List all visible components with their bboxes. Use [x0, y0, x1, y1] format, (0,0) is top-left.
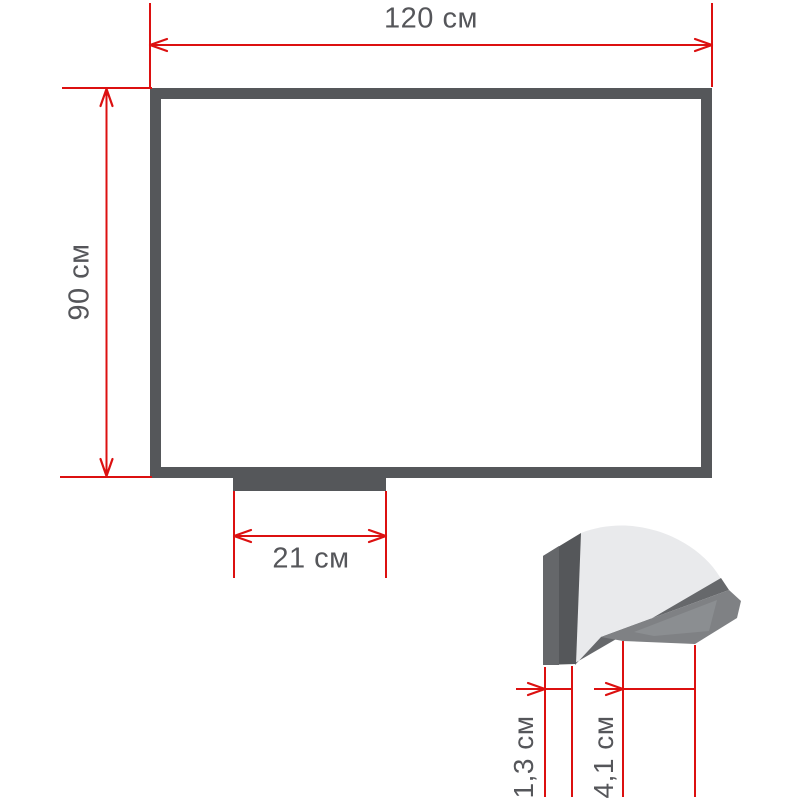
- whiteboard-dimension-diagram: 120 см 90 см 21 см 1,3 см 4,1 см: [0, 0, 800, 800]
- width-dimension-label: 120 см: [384, 5, 478, 34]
- board-tray: [233, 477, 386, 491]
- tray-depth-label: 4,1 см: [590, 716, 618, 799]
- tray-dimension-label: 21 см: [272, 545, 349, 574]
- board-frame: [156, 94, 707, 473]
- corner-profile-detail: [543, 526, 741, 665]
- diagram-drawing: [0, 0, 800, 800]
- height-dimension-label: 90 см: [66, 243, 95, 320]
- detail-frame-slab-highlight: [543, 546, 559, 665]
- frame-thickness-label: 1,3 см: [510, 716, 538, 799]
